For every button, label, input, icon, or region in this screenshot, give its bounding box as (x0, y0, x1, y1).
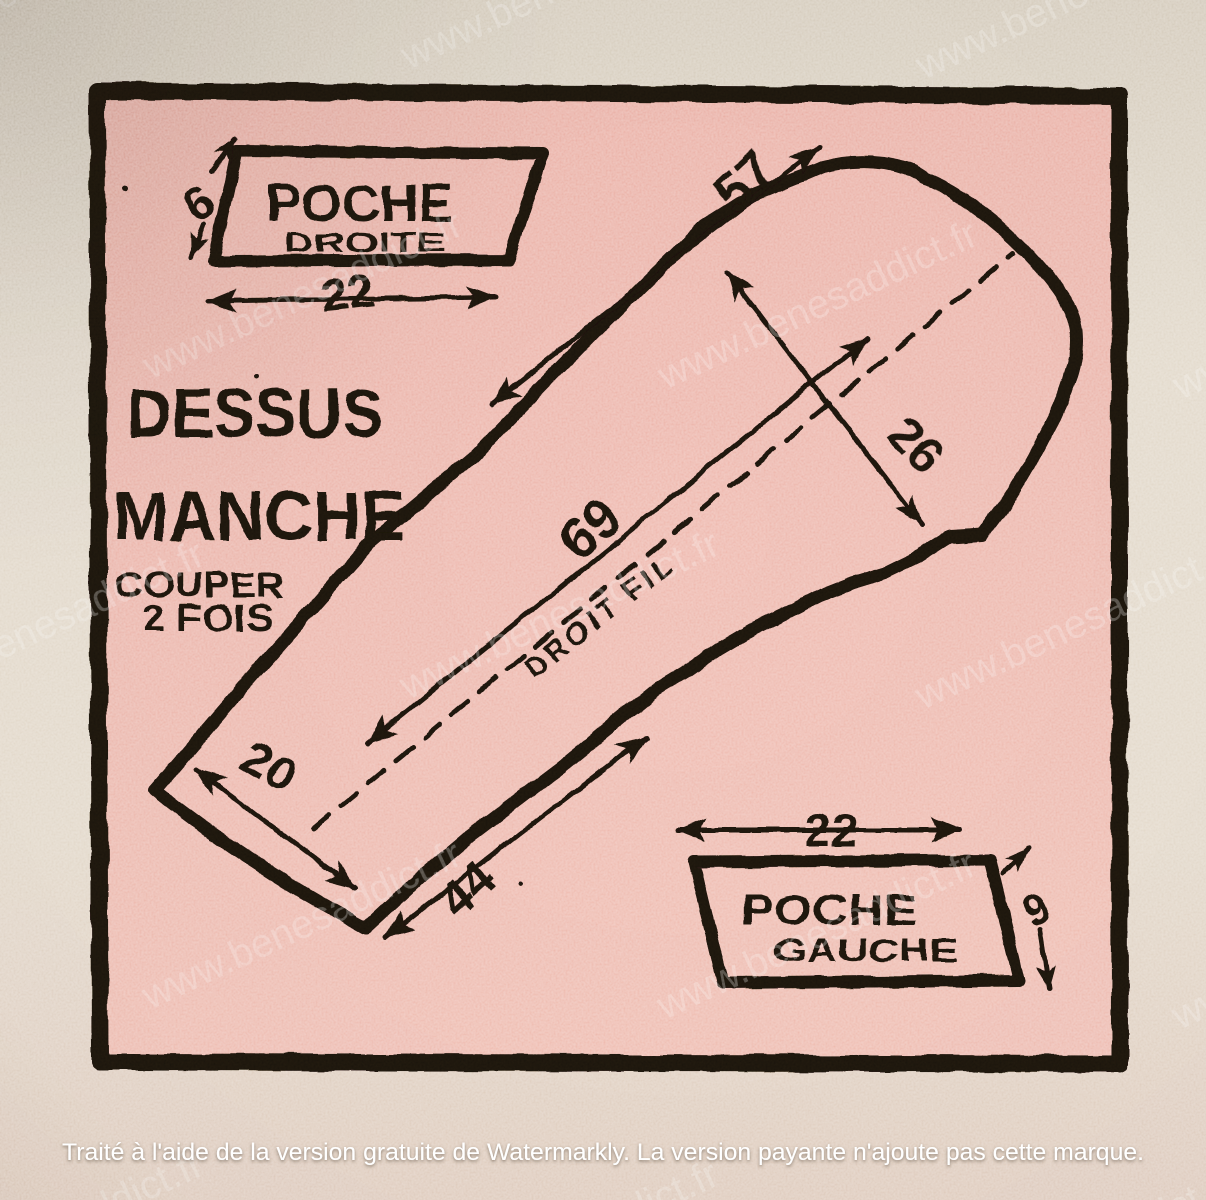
svg-text:Traité à l'aide de la version: Traité à l'aide de la version gratuite d… (62, 1139, 1144, 1166)
